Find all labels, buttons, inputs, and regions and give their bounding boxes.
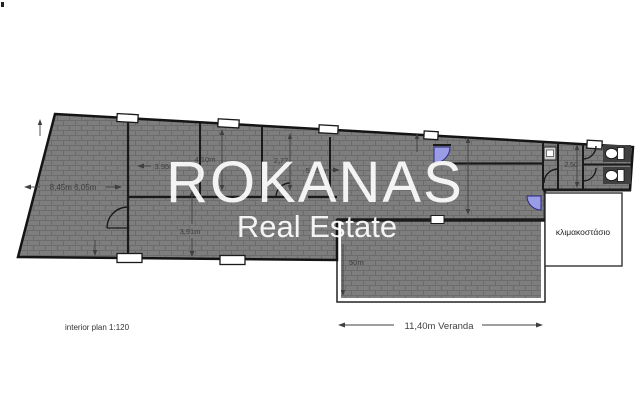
dim-label-50: 50m (349, 258, 364, 267)
window (587, 140, 602, 149)
appliance-icon (547, 150, 554, 157)
window (117, 254, 142, 263)
dim-label-veranda: 11,40m Veranda (404, 321, 474, 332)
dim-label-391: 3,91m (180, 227, 201, 236)
scale-note: interior plan 1:120 (65, 323, 130, 332)
dim-label-250: 2,50 (564, 162, 578, 169)
floor-plan-page: κλιμακοστάσιο (0, 0, 640, 412)
toilet-icon (606, 171, 618, 181)
watermark-line2: Real Estate (237, 209, 397, 244)
window (424, 131, 438, 140)
stairwell-label: κλιμακοστάσιο (556, 227, 611, 237)
toilet-icon (618, 170, 625, 182)
door-opening (431, 216, 444, 224)
stairwell-room: κλιμακοστάσιο (545, 193, 622, 266)
window (220, 256, 245, 265)
watermark-line1: ROKANAS (166, 150, 464, 215)
window (319, 125, 338, 134)
window (117, 114, 138, 123)
dim-label-room1: 8,45m 6,05m (50, 183, 97, 192)
toilet-icon (606, 149, 618, 159)
toilet-icon (618, 148, 625, 160)
print-artifact (1, 2, 4, 7)
floor-plan-svg: κλιμακοστάσιο (0, 0, 640, 412)
window (218, 119, 239, 128)
